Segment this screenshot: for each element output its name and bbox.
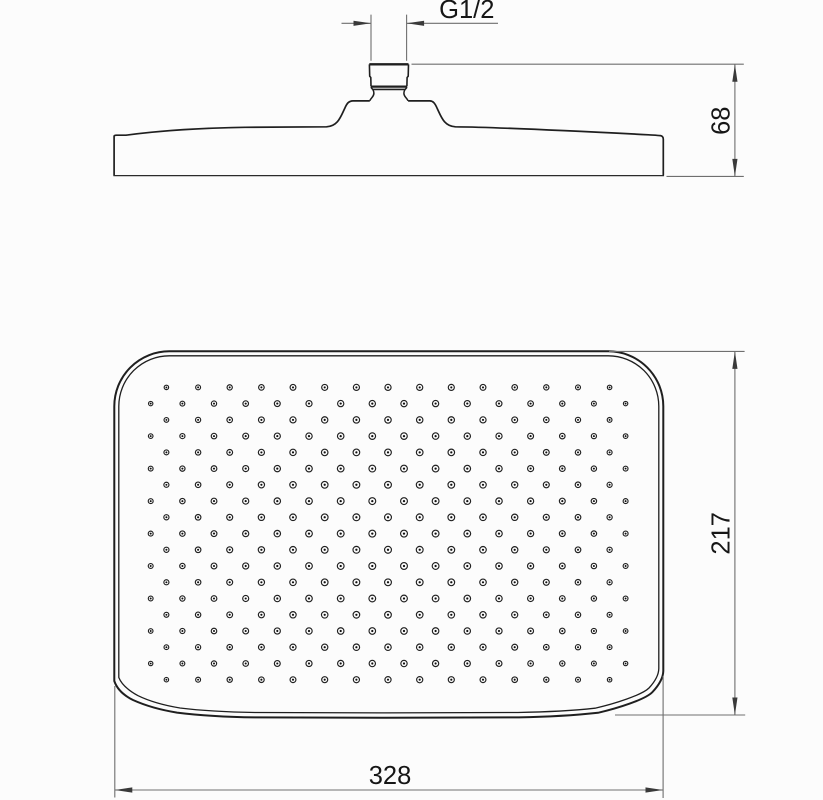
- svg-text:328: 328: [369, 762, 412, 790]
- svg-text:G1/2: G1/2: [439, 0, 494, 24]
- svg-text:68: 68: [707, 107, 735, 135]
- svg-text:217: 217: [707, 512, 735, 555]
